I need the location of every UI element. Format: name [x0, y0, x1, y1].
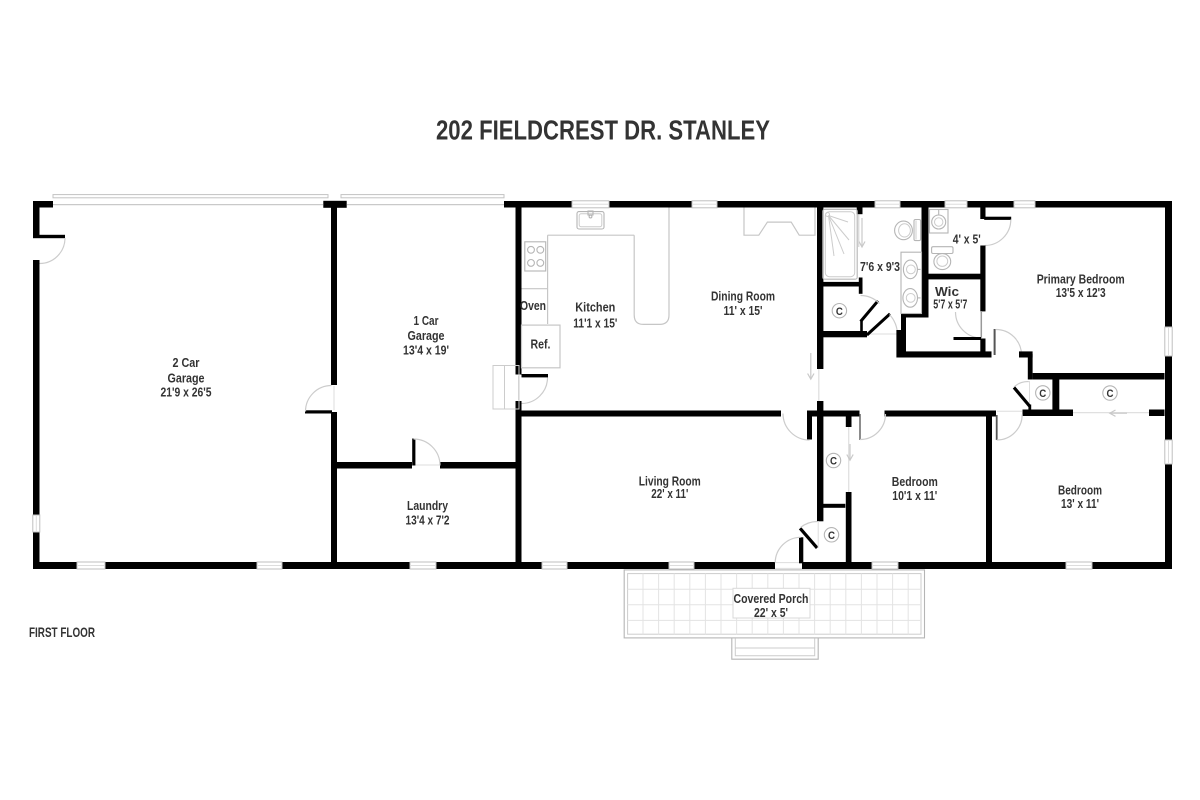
svg-text:C: C: [1107, 388, 1114, 400]
svg-text:10'1 x 11': 10'1 x 11': [892, 489, 937, 503]
svg-text:11'1 x 15': 11'1 x 15': [573, 316, 617, 330]
svg-text:13' x 11': 13' x 11': [1061, 497, 1099, 511]
svg-text:Dining Room: Dining Room: [711, 290, 775, 304]
svg-text:C: C: [836, 306, 843, 318]
svg-text:Garage: Garage: [168, 371, 205, 385]
svg-text:5'7 x 5'7: 5'7 x 5'7: [933, 297, 967, 311]
svg-text:C: C: [828, 530, 835, 542]
svg-text:Bedroom: Bedroom: [1058, 483, 1102, 497]
svg-text:202 FIELDCREST DR. STANLEY: 202 FIELDCREST DR. STANLEY: [436, 115, 770, 146]
svg-text:22' x 11': 22' x 11': [651, 487, 688, 501]
svg-text:Oven: Oven: [520, 299, 546, 313]
svg-text:Bedroom: Bedroom: [892, 475, 938, 489]
svg-text:C: C: [830, 456, 837, 468]
svg-text:22' x 5': 22' x 5': [754, 606, 788, 620]
svg-text:1 Car: 1 Car: [414, 314, 439, 328]
svg-text:Garage: Garage: [408, 329, 445, 343]
svg-text:FIRST FLOOR: FIRST FLOOR: [29, 625, 95, 640]
svg-text:Ref.: Ref.: [531, 338, 551, 352]
svg-text:C: C: [1039, 388, 1046, 400]
svg-text:Laundry: Laundry: [407, 499, 448, 513]
svg-text:Primary Bedroom: Primary Bedroom: [1037, 272, 1125, 286]
svg-text:13'4 x 7'2: 13'4 x 7'2: [406, 514, 450, 528]
svg-text:11' x 15': 11' x 15': [724, 304, 763, 318]
svg-text:7'6 x 9'3: 7'6 x 9'3: [860, 260, 900, 274]
svg-text:13'5 x 12'3: 13'5 x 12'3: [1056, 286, 1106, 300]
svg-text:4' x 5': 4' x 5': [953, 232, 981, 246]
svg-text:21'9 x 26'5: 21'9 x 26'5: [161, 386, 212, 400]
svg-text:2 Car: 2 Car: [173, 356, 200, 370]
svg-text:13'4 x 19': 13'4 x 19': [403, 344, 449, 358]
svg-text:Kitchen: Kitchen: [575, 301, 615, 315]
svg-text:Covered Porch: Covered Porch: [734, 592, 809, 606]
